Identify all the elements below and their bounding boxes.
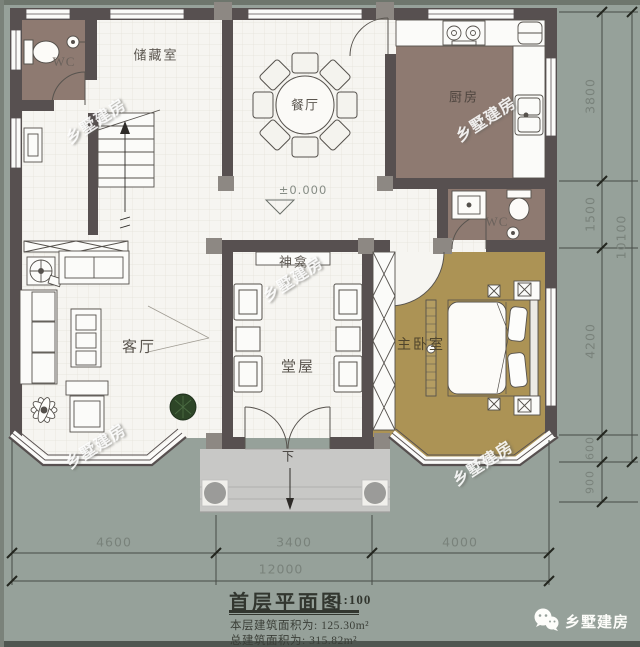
sink-icon bbox=[515, 95, 543, 135]
dim-right-3: 4200 bbox=[583, 323, 598, 359]
window-icon bbox=[26, 9, 70, 19]
column-icon bbox=[204, 482, 226, 504]
window-icon bbox=[546, 288, 556, 406]
armchair-icon bbox=[334, 284, 362, 320]
room-label-wc-master: WC bbox=[486, 214, 509, 230]
room-label-dining: 餐厅 bbox=[291, 95, 319, 114]
room-label-hall: 堂屋 bbox=[281, 356, 315, 377]
dim-bottom-2: 3400 bbox=[276, 535, 312, 550]
floor-plan-page: WC 储藏室 餐厅 厨房 WC 神龛 堂屋 客厅 主卧室 ±0.000 下 46… bbox=[0, 0, 640, 647]
title-underline-2 bbox=[229, 614, 359, 615]
shower-head-icon bbox=[507, 227, 519, 239]
dim-bottom-1: 4600 bbox=[96, 535, 132, 550]
armchair-icon bbox=[66, 381, 108, 432]
side-table-icon bbox=[236, 327, 260, 351]
nightstand-icon bbox=[514, 396, 540, 415]
stove-icon bbox=[443, 21, 485, 45]
room-label-storage: 储藏室 bbox=[133, 45, 178, 64]
nightstand-icon bbox=[514, 281, 540, 300]
tv-cabinet-icon bbox=[59, 251, 129, 284]
potted-plant-icon bbox=[170, 394, 196, 420]
dim-right-2: 1500 bbox=[583, 196, 598, 232]
total-area-text: 总建筑面积为: 315.82m² bbox=[230, 632, 357, 647]
logo-text: 乡墅建房 bbox=[565, 611, 629, 632]
pillow-icon bbox=[507, 352, 527, 388]
dim-bottom-total: 12000 bbox=[259, 562, 304, 577]
room-label-master-bedroom: 主卧室 bbox=[397, 334, 445, 354]
window-icon bbox=[428, 9, 514, 19]
pillow-icon bbox=[507, 306, 527, 342]
room-label-living: 客厅 bbox=[122, 336, 156, 357]
toilet-icon bbox=[507, 190, 531, 220]
armchair-icon bbox=[234, 284, 262, 320]
wardrobe-icon bbox=[373, 252, 395, 430]
porch-floor bbox=[200, 449, 390, 512]
vanity-sink-icon bbox=[452, 191, 486, 219]
dim-right-4: 600 bbox=[584, 436, 597, 460]
window-icon bbox=[248, 9, 362, 19]
armchair-icon bbox=[334, 356, 362, 392]
column-icon bbox=[364, 482, 386, 504]
coffee-table-icon bbox=[71, 309, 101, 367]
floor-plan-drawing bbox=[0, 0, 640, 647]
window-icon bbox=[11, 30, 21, 70]
window-icon bbox=[546, 58, 556, 136]
fridge-icon bbox=[518, 22, 542, 44]
room-label-kitchen: 厨房 bbox=[449, 87, 479, 106]
armchair-icon bbox=[234, 356, 262, 392]
level-marker-label: ±0.000 bbox=[279, 183, 328, 197]
dim-right-1: 3800 bbox=[583, 78, 598, 114]
room-label-wc-upper: WC bbox=[53, 54, 76, 70]
wechat-icon bbox=[531, 606, 561, 632]
sofa-icon bbox=[20, 290, 57, 384]
window-icon bbox=[110, 9, 184, 19]
entry-down-label: 下 bbox=[282, 448, 294, 465]
dim-right-5: 900 bbox=[584, 470, 597, 494]
plan-scale: 1:100 bbox=[336, 592, 371, 608]
side-table-icon bbox=[336, 327, 360, 351]
dim-right-total: 10100 bbox=[614, 215, 629, 260]
window-icon bbox=[11, 118, 21, 168]
dim-bottom-3: 4000 bbox=[442, 535, 478, 550]
high-cabinet-icon bbox=[24, 241, 128, 252]
cabinet-icon bbox=[24, 128, 42, 162]
title-underline bbox=[229, 610, 359, 613]
floor-area-text: 本层建筑面积为: 125.30m² bbox=[230, 617, 369, 633]
